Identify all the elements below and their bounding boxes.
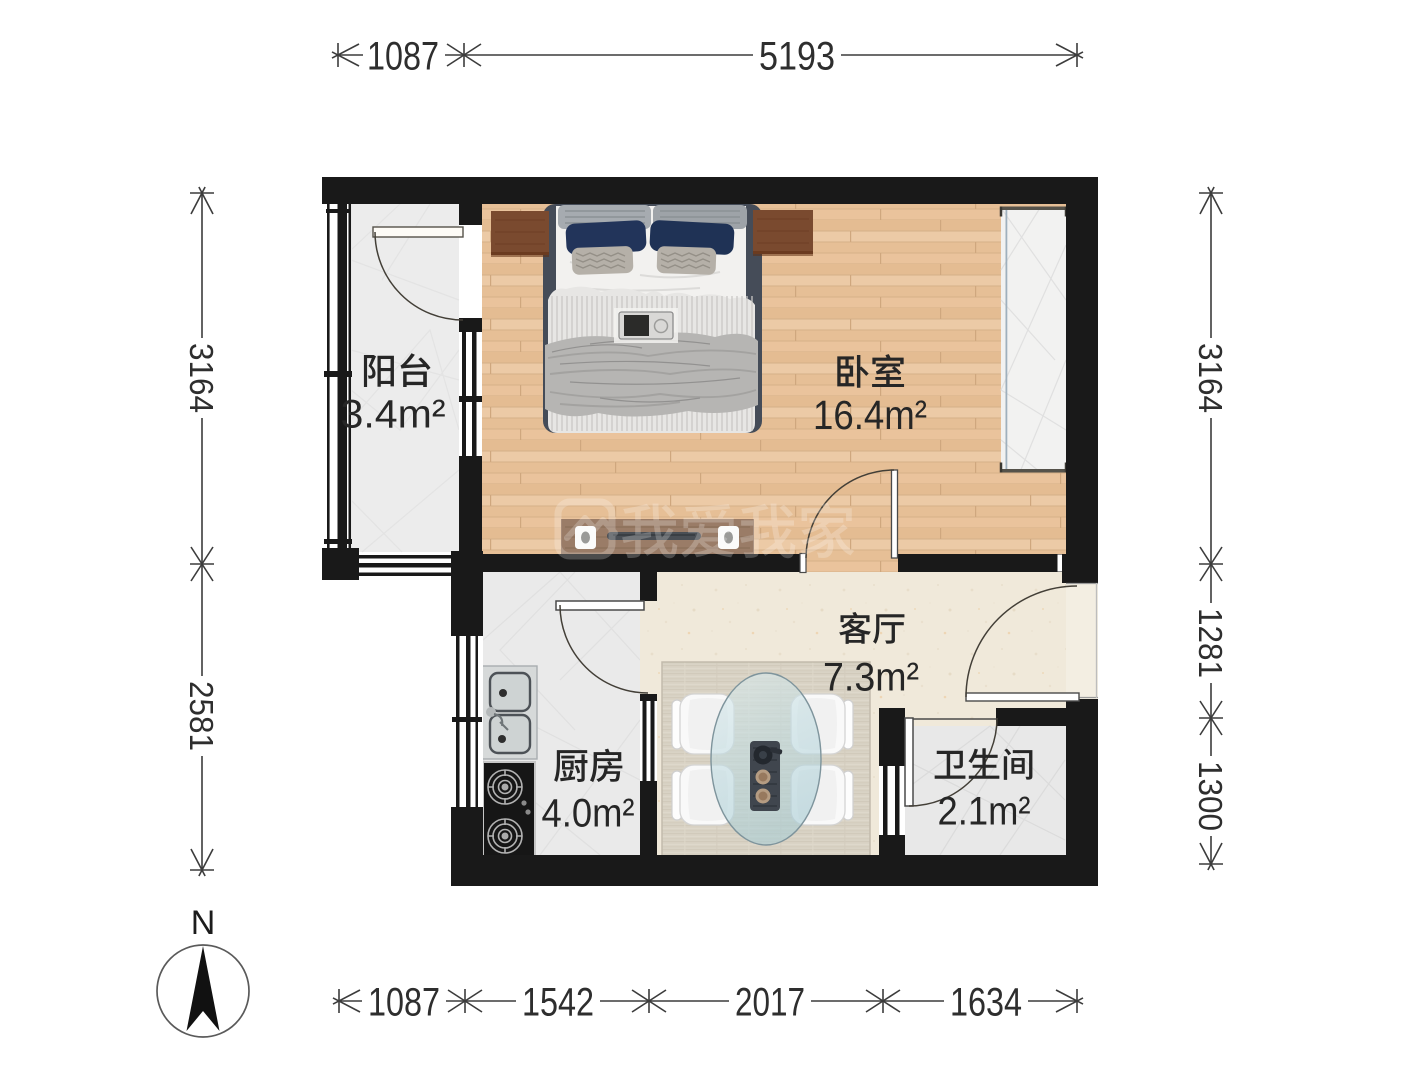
svg-text:1634: 1634: [950, 980, 1022, 1024]
svg-text:16.4m²: 16.4m²: [813, 392, 927, 438]
svg-text:7.3m²: 7.3m²: [823, 655, 919, 699]
svg-text:2017: 2017: [735, 980, 805, 1024]
svg-text:2.1m²: 2.1m²: [938, 789, 1031, 833]
svg-text:4.0m²: 4.0m²: [542, 791, 635, 835]
svg-text:1087: 1087: [367, 34, 439, 78]
svg-text:1087: 1087: [368, 980, 440, 1024]
svg-text:1281: 1281: [1192, 608, 1229, 678]
svg-text:2581: 2581: [183, 681, 220, 751]
svg-text:1542: 1542: [522, 980, 594, 1024]
svg-text:1300: 1300: [1192, 761, 1229, 831]
svg-text:N: N: [191, 904, 216, 942]
svg-text:3.4m²: 3.4m²: [341, 392, 446, 436]
svg-text:3164: 3164: [1192, 343, 1229, 413]
svg-text:5193: 5193: [759, 34, 835, 78]
svg-text:3164: 3164: [183, 343, 220, 413]
